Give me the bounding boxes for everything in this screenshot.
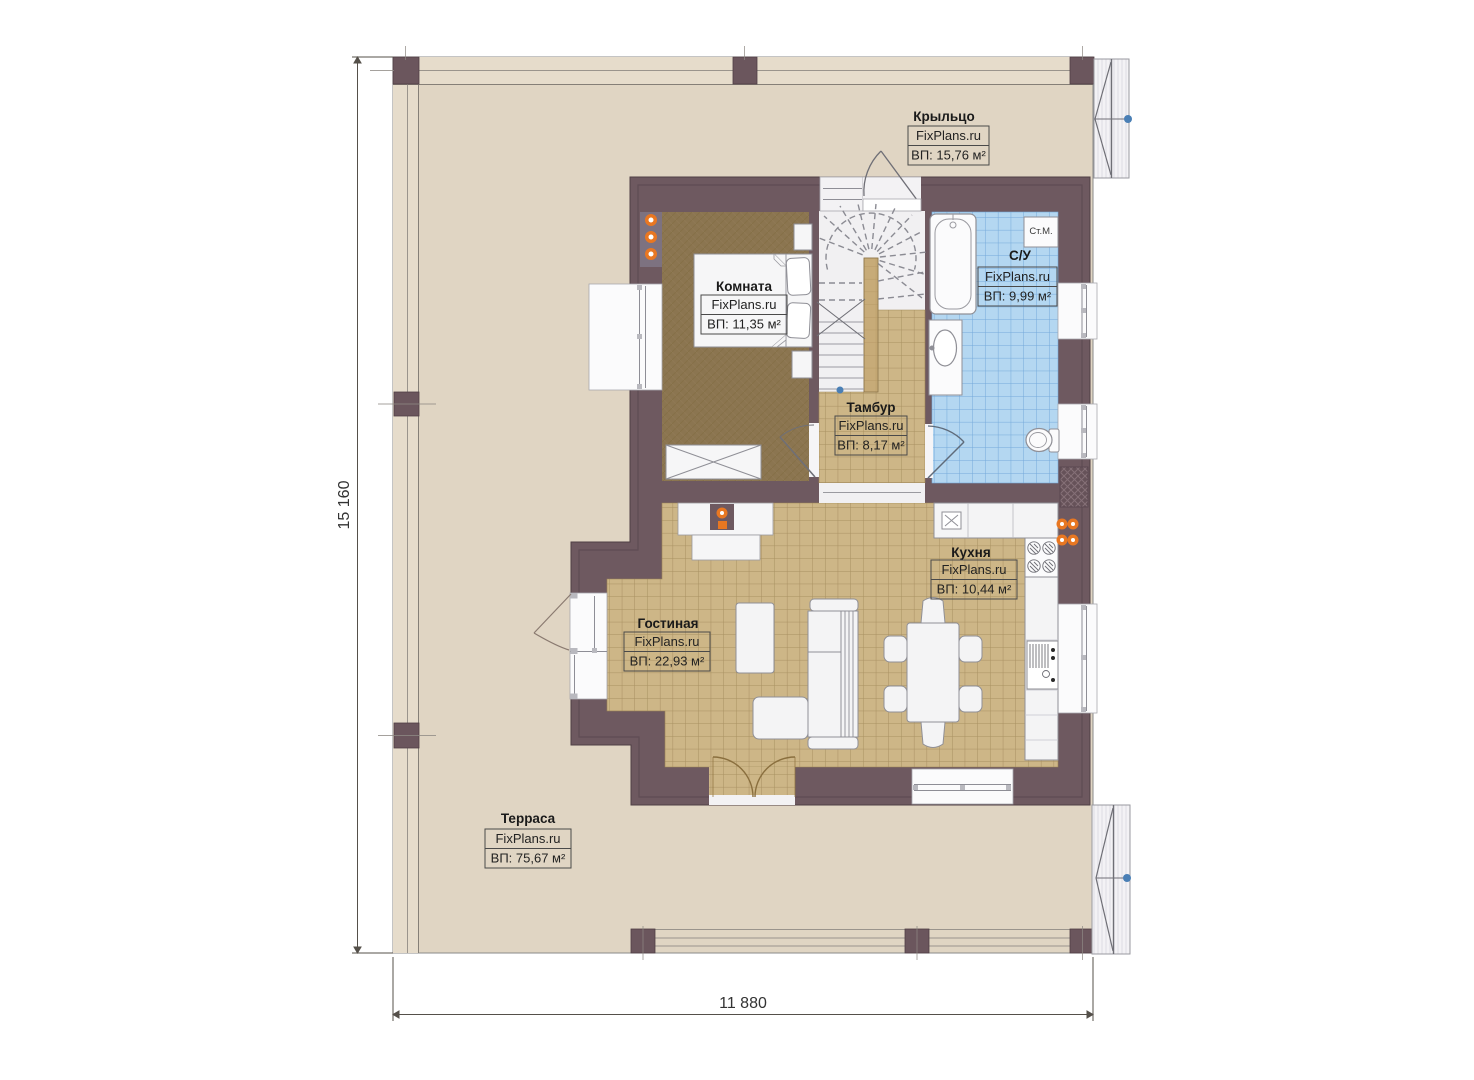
svg-text:ВП: 8,17 м²: ВП: 8,17 м² — [837, 438, 905, 453]
svg-text:ВП: 15,76 м²: ВП: 15,76 м² — [911, 148, 986, 163]
svg-text:FixPlans.ru: FixPlans.ru — [916, 128, 981, 143]
svg-text:ВП: 9,99 м²: ВП: 9,99 м² — [984, 289, 1052, 304]
svg-text:Кухня: Кухня — [951, 545, 990, 560]
svg-text:ВП: 22,93 м²: ВП: 22,93 м² — [630, 654, 705, 669]
svg-text:Крыльцо: Крыльцо — [913, 109, 974, 124]
svg-text:FixPlans.ru: FixPlans.ru — [838, 418, 903, 433]
svg-text:FixPlans.ru: FixPlans.ru — [711, 297, 776, 312]
svg-text:Комната: Комната — [716, 279, 773, 294]
svg-text:С/У: С/У — [1009, 248, 1032, 263]
svg-text:FixPlans.ru: FixPlans.ru — [985, 269, 1050, 284]
svg-text:ВП: 10,44 м²: ВП: 10,44 м² — [937, 582, 1012, 597]
svg-text:Тамбур: Тамбур — [847, 400, 896, 415]
svg-text:FixPlans.ru: FixPlans.ru — [495, 831, 560, 846]
svg-text:ВП: 11,35 м²: ВП: 11,35 м² — [707, 317, 781, 332]
svg-text:Ст.М.: Ст.М. — [1029, 226, 1052, 237]
svg-text:Терраса: Терраса — [501, 811, 556, 826]
svg-text:FixPlans.ru: FixPlans.ru — [941, 562, 1006, 577]
svg-text:ВП: 75,67 м²: ВП: 75,67 м² — [491, 851, 566, 866]
svg-text:11 880: 11 880 — [719, 995, 767, 1012]
svg-text:FixPlans.ru: FixPlans.ru — [634, 634, 699, 649]
svg-text:15 160: 15 160 — [336, 480, 353, 529]
svg-text:Гостиная: Гостиная — [637, 616, 698, 631]
